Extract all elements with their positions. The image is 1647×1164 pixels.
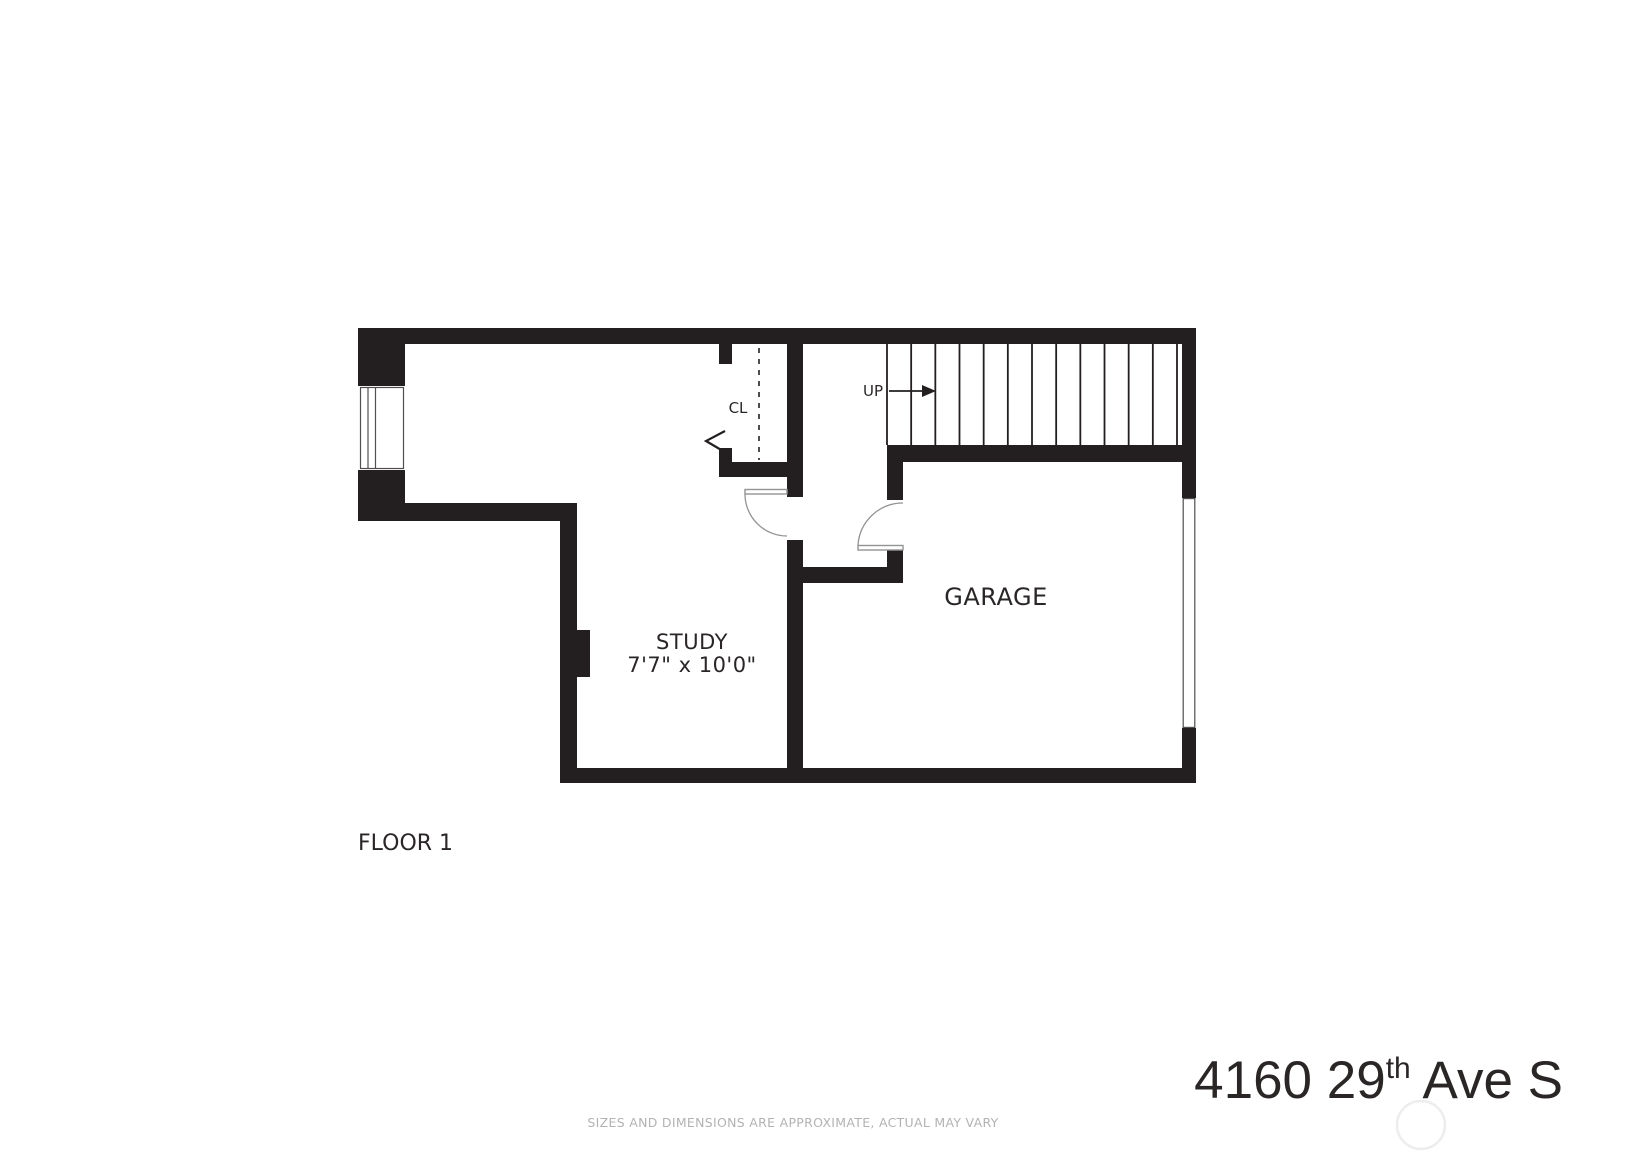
hall-door-leaf (745, 490, 787, 495)
wall-left-upper (358, 344, 405, 386)
walls (358, 328, 1196, 783)
wall-closet-stub (719, 344, 732, 364)
address-superscript: th (1386, 1052, 1411, 1085)
wall-right-lower (1182, 728, 1196, 768)
garage-entry-door (858, 503, 903, 550)
stair-treads (887, 344, 1177, 445)
up-arrow-head (922, 385, 936, 397)
study-dimensions: 7'7" x 10'0" (627, 654, 756, 677)
disclaimer: SIZES AND DIMENSIONS ARE APPROXIMATE, AC… (587, 1115, 998, 1130)
wall-top (358, 328, 1196, 344)
wall-study-pilaster (577, 630, 590, 677)
address: 4160 29th Ave S (1194, 1050, 1563, 1111)
address-prefix: 4160 29 (1194, 1051, 1386, 1110)
study-label: STUDY (627, 631, 756, 654)
closet-label: CL (729, 399, 748, 417)
study-room-label: STUDY 7'7" x 10'0" (627, 631, 756, 677)
wall-closet-bottom (719, 462, 787, 477)
wall-right-upper (1182, 344, 1196, 498)
wall-hall-bottom (358, 503, 577, 521)
hall-door-arc (745, 494, 787, 536)
wall-vestibule-bottom (787, 567, 903, 583)
address-suffix: Ave S (1411, 1051, 1563, 1110)
floor-plan-drawing (0, 0, 1647, 1164)
floor-label: FLOOR 1 (358, 831, 453, 856)
wall-hall-divider-upper (787, 344, 803, 497)
garage-entry-door-arc (858, 503, 903, 545)
window (358, 386, 405, 470)
wall-stairs-bottom (887, 445, 1182, 462)
hall-door (745, 490, 787, 537)
wall-bottom (560, 768, 1196, 783)
garage-door-opening (1182, 498, 1196, 728)
window-opening (358, 386, 405, 470)
stairs-up-label: UP (863, 382, 883, 400)
garage-label: GARAGE (944, 583, 1047, 611)
wall-study-left (560, 503, 577, 783)
stairs (887, 344, 1177, 445)
garage-entry-door-leaf (858, 546, 903, 551)
garage-door (1182, 498, 1196, 728)
wall-garage-left-upper (887, 445, 903, 500)
